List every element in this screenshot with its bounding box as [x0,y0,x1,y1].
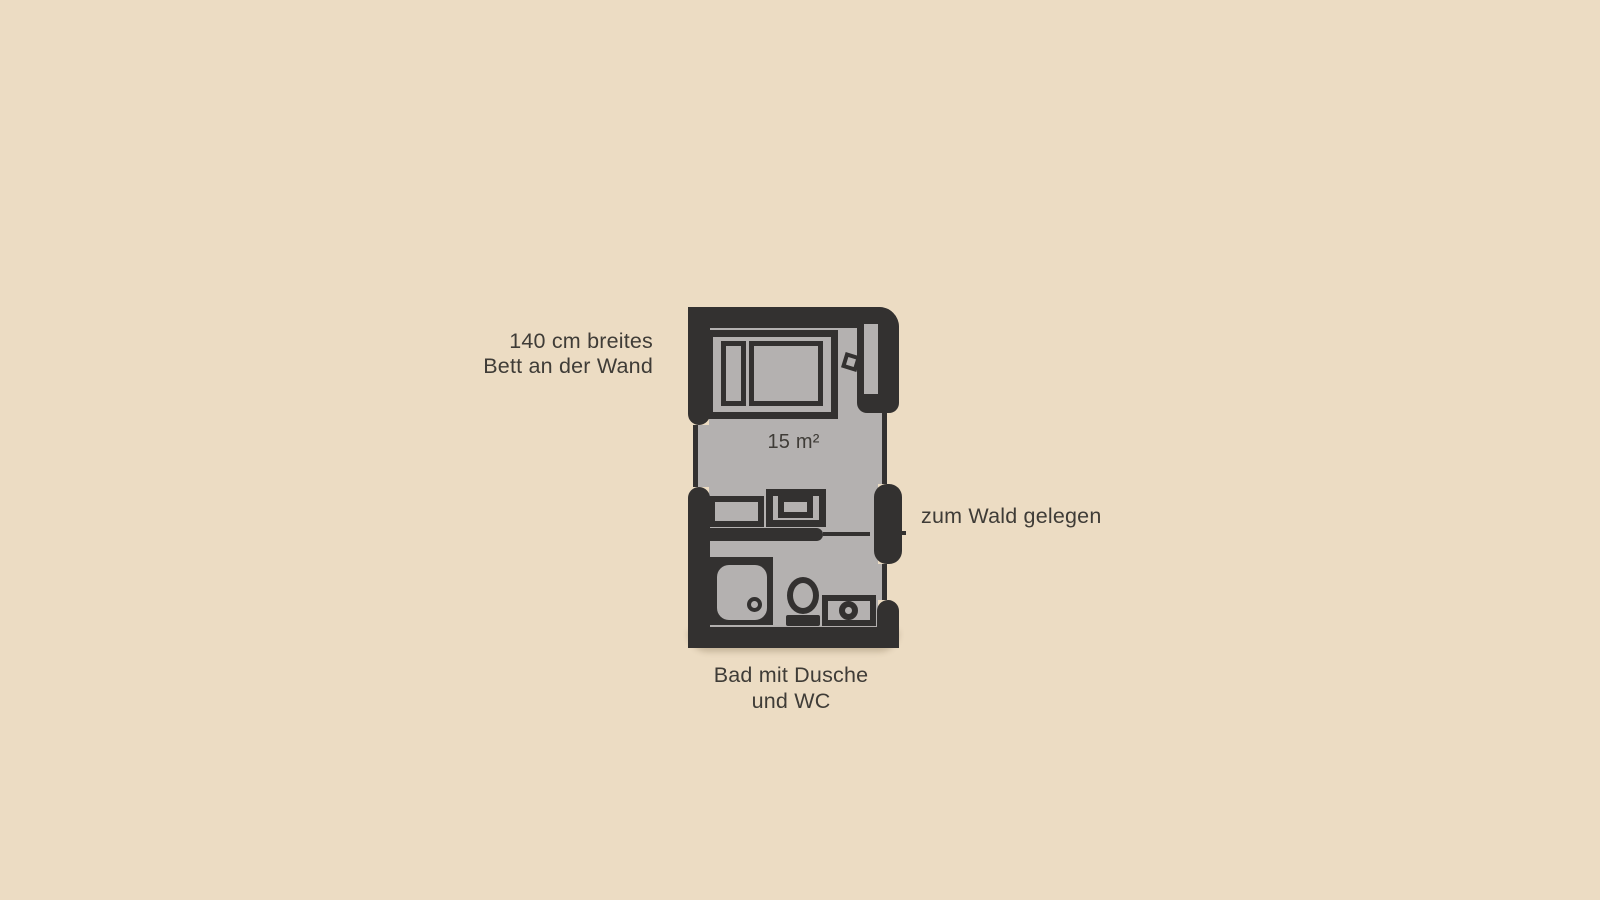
outer-wall-left-lower [688,487,710,648]
window-left-icon [693,425,698,487]
wall-tick [897,531,906,535]
bed-annotation-line1: 140 cm breites [483,329,653,354]
shower-drain-icon [747,597,762,612]
toilet-cistern-icon [786,615,820,626]
bath-annotation: Bad mit Dusche und WC [691,662,891,714]
wardrobe-interior [864,324,878,394]
area-label: 15 m² [709,431,878,454]
window-right-upper-icon [882,413,887,484]
wall-pillar-right [874,484,902,564]
bed-pillow-icon [721,341,746,406]
sideboard-icon [709,496,764,527]
bed-duvet-icon [749,341,823,406]
bed-annotation-line2: Bett an der Wand [483,354,653,379]
canvas: { "canvas": { "background": "#ecdcc3" },… [0,0,1600,900]
divider-wall [688,528,823,541]
bed-annotation: 140 cm breites Bett an der Wand [483,329,653,379]
bath-annotation-line1: Bad mit Dusche [691,662,891,688]
shower-tray-icon [717,565,767,620]
sink-bowl-icon [839,601,858,620]
table-inner-icon [778,496,813,518]
window-annotation: zum Wald gelegen [921,504,1101,529]
door-line-icon [823,532,870,536]
window-right-lower-icon [882,564,887,600]
floorplan: 15 m² [688,307,899,648]
outer-wall-bottom [688,627,899,648]
bath-annotation-line2: und WC [691,688,891,714]
outer-wall-right-lower [877,600,899,648]
toilet-icon [787,577,819,614]
